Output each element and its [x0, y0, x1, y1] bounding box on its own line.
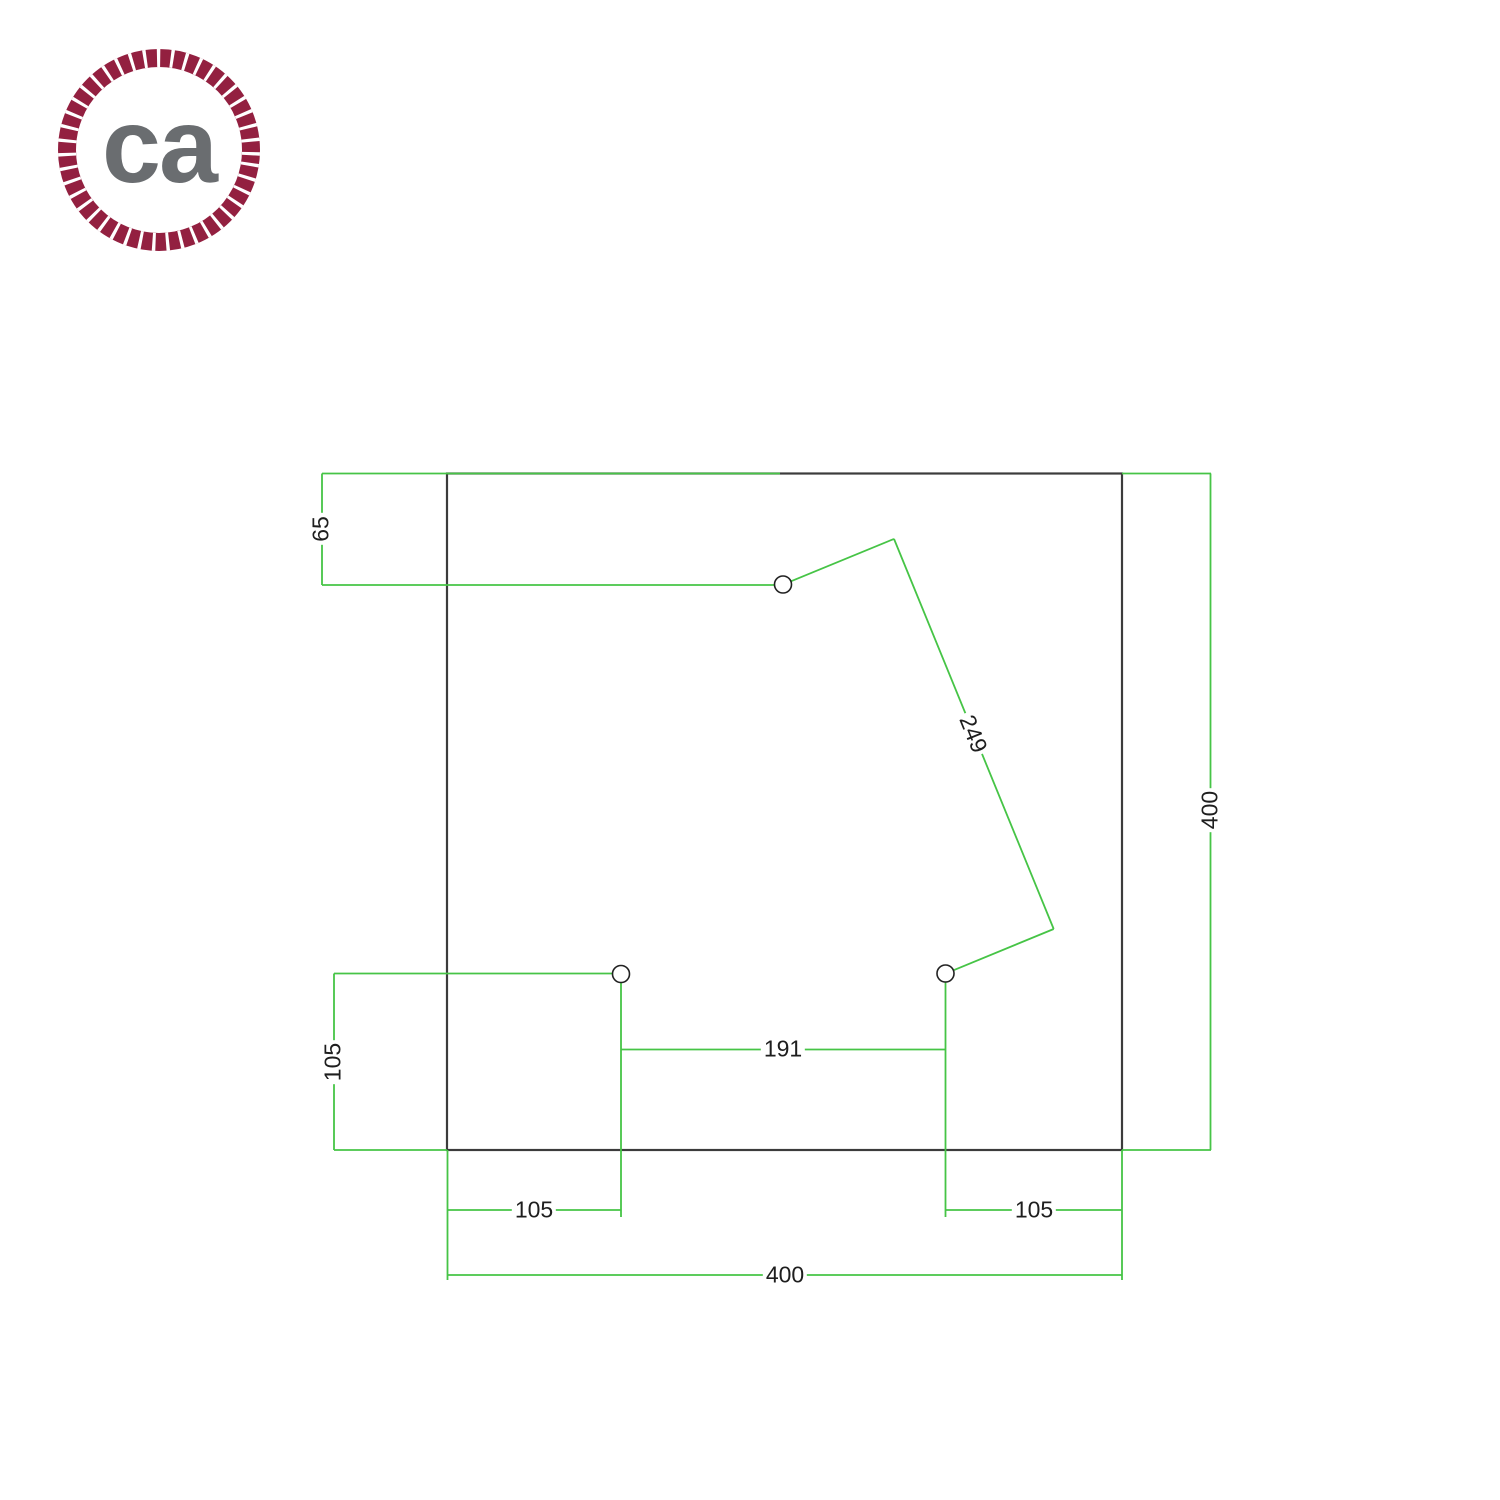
cable-hole-bottom-right [937, 965, 954, 982]
dim-249-line [894, 539, 1054, 929]
dim-249-ext-b [953, 929, 1053, 970]
page: ca 65249400105191105105400 [0, 0, 1500, 1500]
dim-249-ext-a [791, 539, 894, 581]
cable-hole-bottom-left [613, 966, 630, 983]
plate-outline [447, 474, 1122, 1151]
drawing-canvas [0, 0, 1500, 1500]
cable-hole-top [775, 576, 792, 593]
